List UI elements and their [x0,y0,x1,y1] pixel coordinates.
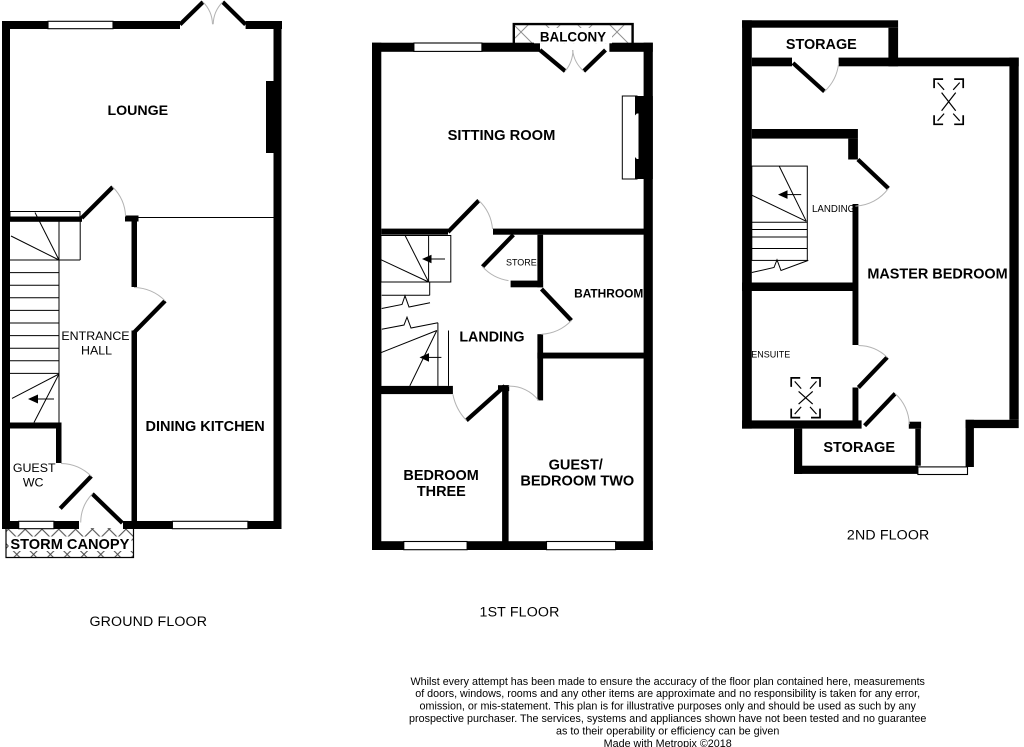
svg-text:BATHROOM: BATHROOM [574,287,643,301]
svg-text:of doors, windows, rooms and a: of doors, windows, rooms and any other i… [415,688,920,700]
svg-text:STORM CANOPY: STORM CANOPY [10,537,129,553]
svg-text:Made with Metropix ©2018: Made with Metropix ©2018 [604,738,732,747]
svg-text:STORE: STORE [506,258,537,268]
svg-text:DINING KITCHEN: DINING KITCHEN [145,419,264,435]
svg-text:STORAGE: STORAGE [786,37,857,53]
svg-text:GUEST/: GUEST/ [549,458,603,474]
svg-text:SITTING ROOM: SITTING ROOM [448,128,556,144]
svg-text:prospective purchaser. The ser: prospective purchaser. The services, sys… [409,713,926,725]
svg-text:ENSUITE: ENSUITE [751,349,790,359]
svg-text:1ST FLOOR: 1ST FLOOR [480,605,560,621]
svg-text:BEDROOM: BEDROOM [403,468,478,484]
svg-text:LANDING: LANDING [812,204,855,215]
svg-text:BEDROOM TWO: BEDROOM TWO [520,474,634,490]
svg-text:HALL: HALL [81,344,112,358]
svg-text:ENTRANCE: ENTRANCE [61,329,129,343]
svg-text:2ND FLOOR: 2ND FLOOR [847,528,930,544]
svg-text:omission, or mis-statement. Th: omission, or mis-statement. This plan is… [420,701,917,713]
svg-text:MASTER BEDROOM: MASTER BEDROOM [867,267,1007,283]
svg-text:WC: WC [23,475,44,489]
svg-text:THREE: THREE [417,484,466,500]
svg-text:GROUND FLOOR: GROUND FLOOR [89,614,207,630]
svg-text:GUEST: GUEST [13,461,56,475]
svg-text:BALCONY: BALCONY [540,29,606,44]
svg-text:LANDING: LANDING [459,330,524,346]
svg-text:LOUNGE: LOUNGE [107,103,168,119]
svg-text:as to their operability or eff: as to their operability or efficiency ca… [556,725,779,737]
svg-text:STORAGE: STORAGE [823,440,895,456]
svg-text:Whilst every attempt has been: Whilst every attempt has been made to en… [410,676,925,688]
